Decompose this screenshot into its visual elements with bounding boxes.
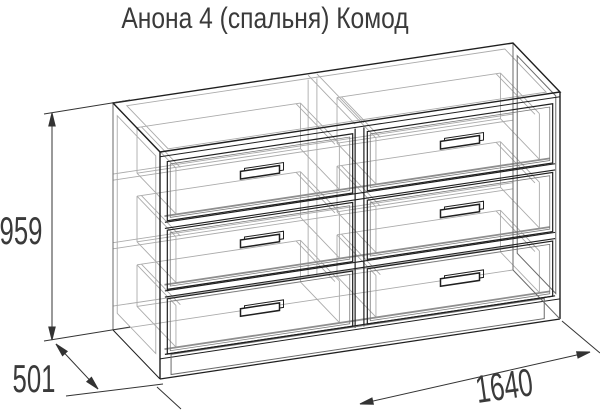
diagram-page: Анона 4 (спальня) Комод 959 501 1640: [0, 0, 600, 411]
furniture-wireframe-diagram: 959 501 1640: [0, 0, 600, 411]
drawer-handle: [240, 231, 283, 247]
depth-dimension-label: 501: [13, 358, 56, 402]
drawer-handle: [440, 133, 483, 149]
height-dimension-label: 959: [0, 210, 42, 254]
drawer-handle: [440, 270, 483, 286]
drawer-handle: [240, 163, 283, 179]
drawer-handle: [440, 201, 483, 217]
drawer-handle: [240, 300, 283, 316]
width-dimension-label: 1640: [473, 361, 536, 411]
